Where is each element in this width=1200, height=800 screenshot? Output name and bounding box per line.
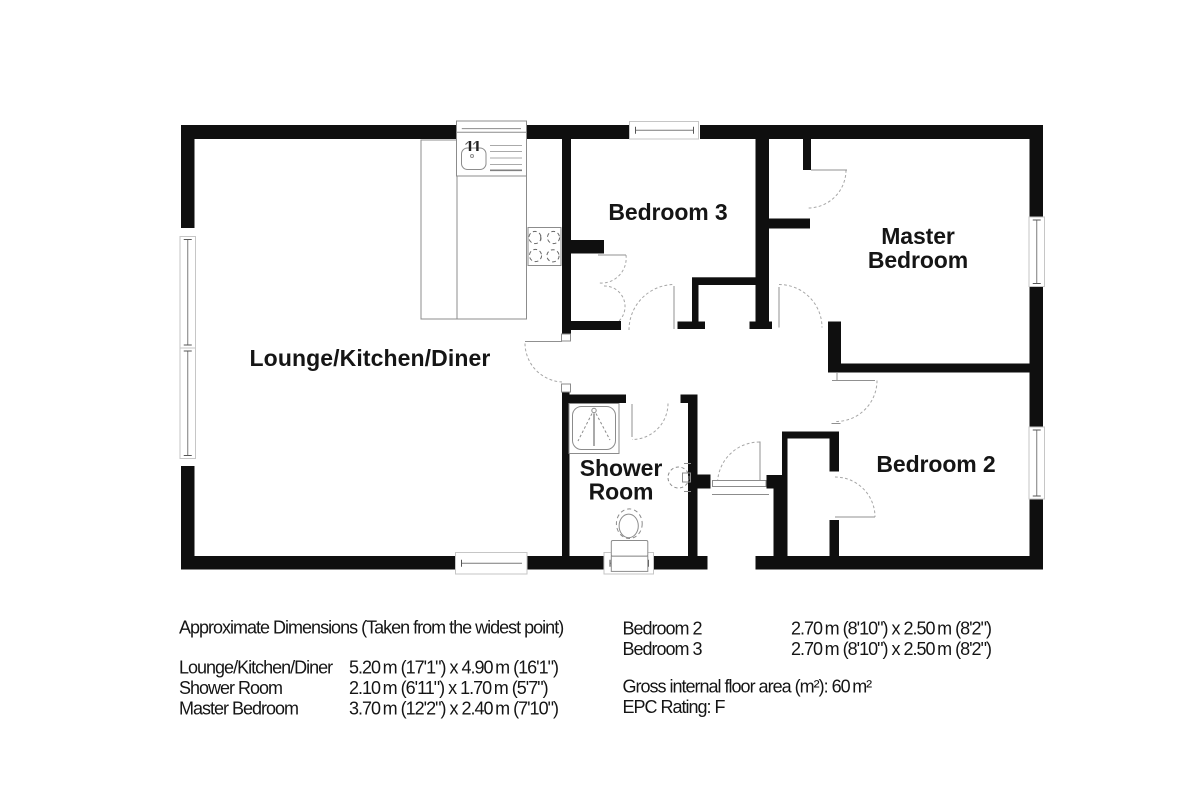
svg-text:Bedroom 3: Bedroom 3 [608, 199, 727, 225]
svg-text:Approximate Dimensions (Taken: Approximate Dimensions (Taken from the w… [179, 618, 563, 638]
svg-text:Bedroom 2: Bedroom 2 [623, 619, 703, 639]
svg-text:Bedroom: Bedroom [868, 247, 968, 273]
svg-text:Bedroom 2: Bedroom 2 [876, 451, 995, 477]
svg-text:EPC Rating: F: EPC Rating: F [623, 697, 726, 717]
svg-text:3.70 m (12'2") x 2.40 m (7'10": 3.70 m (12'2") x 2.40 m (7'10") [349, 699, 558, 719]
svg-text:Master: Master [881, 223, 955, 249]
svg-text:Shower: Shower [580, 455, 663, 481]
svg-text:2.70 m (8'10") x 2.50 m (8'2"): 2.70 m (8'10") x 2.50 m (8'2") [791, 639, 991, 659]
svg-text:Master Bedroom: Master Bedroom [179, 699, 298, 719]
svg-text:5.20 m (17'1") x 4.90 m (16'1": 5.20 m (17'1") x 4.90 m (16'1") [349, 658, 558, 678]
svg-text:Gross internal floor area (m²): Gross internal floor area (m²): 60 m² [623, 677, 873, 697]
svg-text:2.10 m (6'11") x 1.70 m (5'7"): 2.10 m (6'11") x 1.70 m (5'7") [349, 678, 548, 698]
svg-text:Bedroom 3: Bedroom 3 [623, 639, 703, 659]
svg-text:Lounge/Kitchen/Diner: Lounge/Kitchen/Diner [179, 658, 333, 678]
svg-text:Room: Room [589, 479, 654, 505]
svg-text:Shower Room: Shower Room [179, 678, 282, 698]
svg-text:2.70 m (8'10") x 2.50 m (8'2"): 2.70 m (8'10") x 2.50 m (8'2") [791, 619, 991, 639]
svg-text:Lounge/Kitchen/Diner: Lounge/Kitchen/Diner [250, 345, 491, 371]
